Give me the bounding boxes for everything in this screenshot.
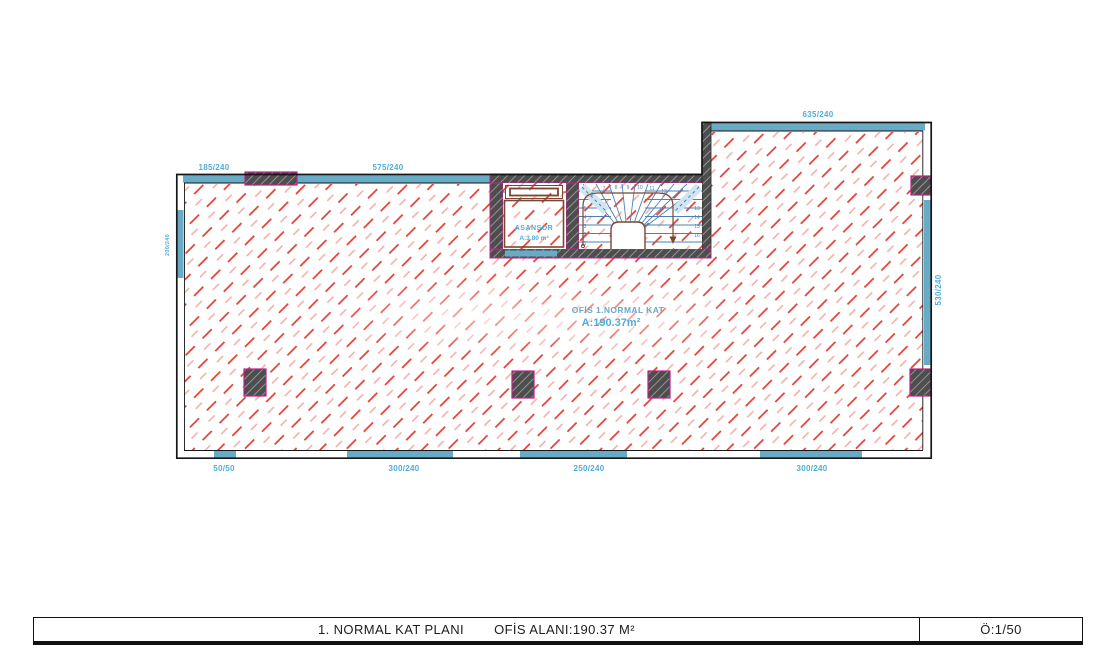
window-right-530 [924,200,931,365]
window-top-185 [183,176,245,183]
title-bar-main: 1. NORMAL KAT PLANI OFİS ALANI:190.37 M² [34,618,919,641]
stair-step-number: 5 [584,206,587,212]
window-bottom-50 [214,451,236,458]
elevator-door [505,251,557,257]
stair-step-number: 1 [584,241,587,247]
title-bar: 1. NORMAL KAT PLANI OFİS ALANI:190.37 M²… [33,617,1083,645]
stair-step-number: 6 [591,192,594,198]
stair-step-number: 10 [637,185,643,191]
stair-step-number: 13 [694,206,700,212]
stair-step-number: 4 [584,215,587,221]
scale-label: Ö:1/50 [980,622,1021,637]
window-bottom-250 [520,451,627,458]
stair-step-number: 16 [694,233,700,239]
dim-top-left: 185/240 [198,163,229,172]
stair-step-number: 14 [694,215,700,221]
stair-step-number: 8 [615,185,618,191]
room-name: OFİS 1.NORMAL KAT [572,305,665,315]
window-top-635 [707,124,925,131]
dim-bottom-1: 50/50 [213,464,235,473]
dim-bottom-3: 250/240 [573,464,604,473]
window-top-575 [297,176,490,183]
stair-step-number: 2 [584,232,587,238]
elevator: ASANSÖR A:3.80 m² [503,183,566,257]
dim-bottom-2: 300/240 [388,464,419,473]
office-area-label: OFİS ALANI:190.37 M² [494,622,635,637]
stair-step-number: 9 [627,185,630,191]
dim-top-right: 635/240 [802,110,833,119]
stair-step-number: 11 [649,186,654,192]
elevator-name: ASANSÖR [515,223,554,232]
column-4 [910,369,931,396]
dim-right: 530/240 [934,274,943,305]
window-bottom-300a [347,451,453,458]
elevator-area: A:3.80 m² [519,235,549,242]
stair-step-number: 15 [694,224,700,230]
stair-newel [611,222,645,249]
window-left [178,210,184,278]
column-5 [911,176,931,195]
floor-plan-drawing: ASANSÖR A:3.80 m² 1234567891011121314151… [0,0,1095,660]
scale-box: Ö:1/50 [919,618,1082,641]
dim-left: 200/240 [165,234,171,256]
column-2 [512,371,534,398]
stair-step-number: 3 [584,224,587,230]
stair-step-number: 7 [603,186,606,192]
staircase: 12345678910111213141516 [579,183,702,249]
room-area: A:190.37m² [582,317,641,329]
stair-step-number: 12 [661,189,667,195]
dim-bottom-4: 300/240 [796,464,827,473]
column-3 [648,371,670,398]
dim-top-mid: 575/240 [372,163,403,172]
window-bottom-300b [760,451,862,458]
floor-plan-page: ASANSÖR A:3.80 m² 1234567891011121314151… [0,0,1095,660]
plan-title: 1. NORMAL KAT PLANI [318,622,464,637]
column-1 [244,369,266,396]
